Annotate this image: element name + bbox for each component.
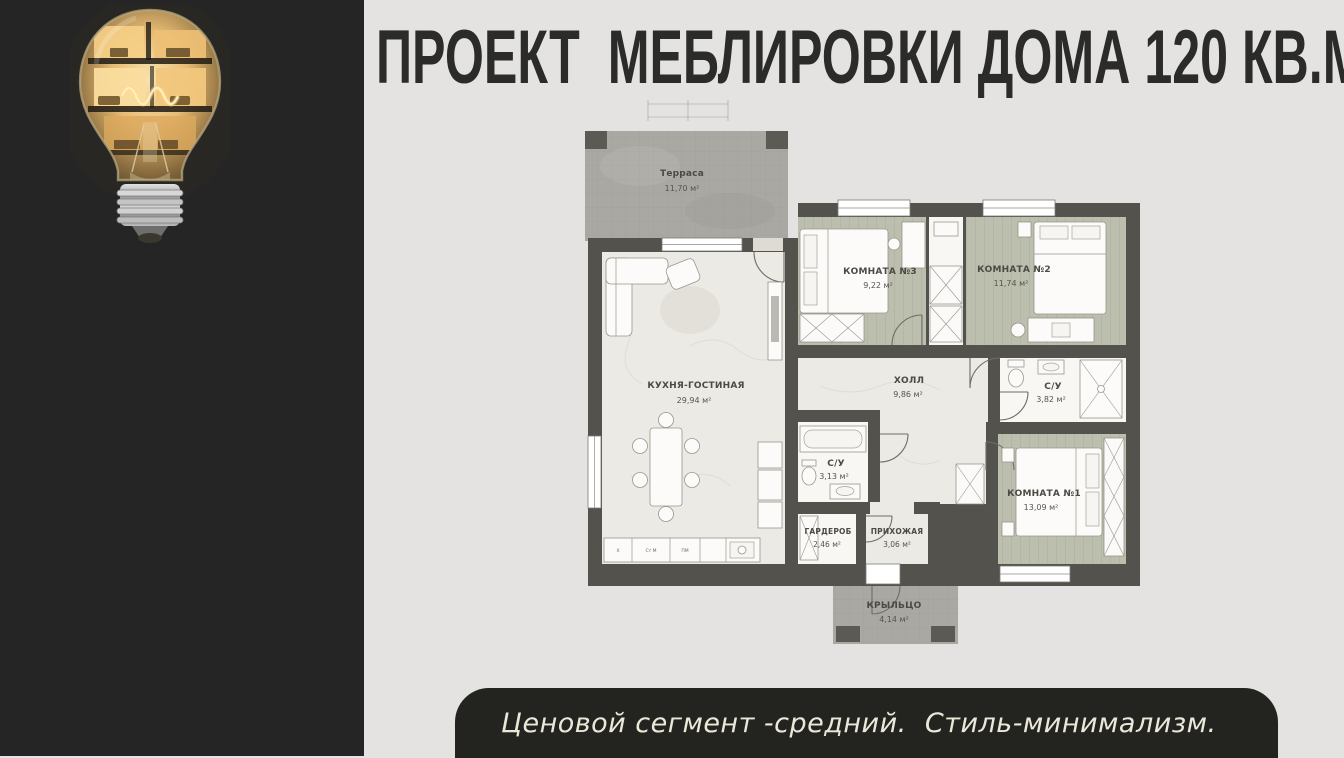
room-area-porch: 4,14 м²: [879, 615, 909, 624]
room-label-porch: КРЫЛЬЦО: [866, 601, 921, 611]
room-label-kitchen-living: КУХНЯ-ГОСТИНАЯ: [647, 381, 744, 391]
room-area-bathroom-2: 3,82 м²: [1036, 395, 1066, 404]
dimension-lines: [648, 100, 728, 121]
room-label-entry: ПРИХОЖАЯ: [871, 527, 924, 536]
room-label-room3: КОМНАТА №3: [843, 267, 917, 277]
footer-bar: Ценовой сегмент -средний. Стиль-минимали…: [455, 688, 1278, 758]
lightbulb-house-image: [70, 4, 230, 244]
floor-entry: [866, 514, 928, 564]
room-area-entry: 3,06 м²: [883, 540, 911, 549]
room-area-bathroom-1: 3,13 м²: [819, 472, 849, 481]
room-area-hall: 9,86 м²: [893, 390, 923, 399]
room-area-wardrobe: 2,46 м²: [813, 540, 841, 549]
room-area-room1: 13,09 м²: [1024, 503, 1059, 512]
room-area-kitchen-living: 29,94 м²: [677, 396, 712, 405]
room-label-wardrobe: ГАРДЕРОБ: [804, 527, 851, 536]
kitchen-unit-label-1: X: [616, 548, 619, 554]
bulb-base: [117, 184, 183, 243]
floor-plan: Терраса 11,70 м² КОМНАТА №3 9,22 м² КОМН…: [570, 96, 1160, 656]
room-label-bathroom-1: С/У: [827, 459, 844, 469]
footer-text: Ценовой сегмент -средний. Стиль-минимали…: [501, 708, 1217, 739]
room-label-hall: ХОЛЛ: [894, 376, 924, 386]
room-area-room3: 9,22 м²: [863, 281, 893, 290]
kitchen-unit-label-2: Ст М: [645, 548, 656, 554]
room-label-room1: КОМНАТА №1: [1007, 489, 1081, 499]
kitchen-unit-label-3: ПМ: [681, 548, 688, 554]
room-area-terrace: 11,70 м²: [665, 184, 700, 193]
room-area-room2: 11,74 м²: [994, 279, 1029, 288]
room-porch: [833, 578, 958, 644]
room-label-room2: КОМНАТА №2: [977, 265, 1051, 275]
room-label-bathroom-2: С/У: [1044, 382, 1061, 392]
page-title: ПРОЕКТ МЕБЛИРОВКИ ДОМА 120 КВ.М: [376, 20, 1344, 96]
room-label-terrace: Терраса: [660, 169, 704, 179]
left-panel: [0, 0, 364, 756]
